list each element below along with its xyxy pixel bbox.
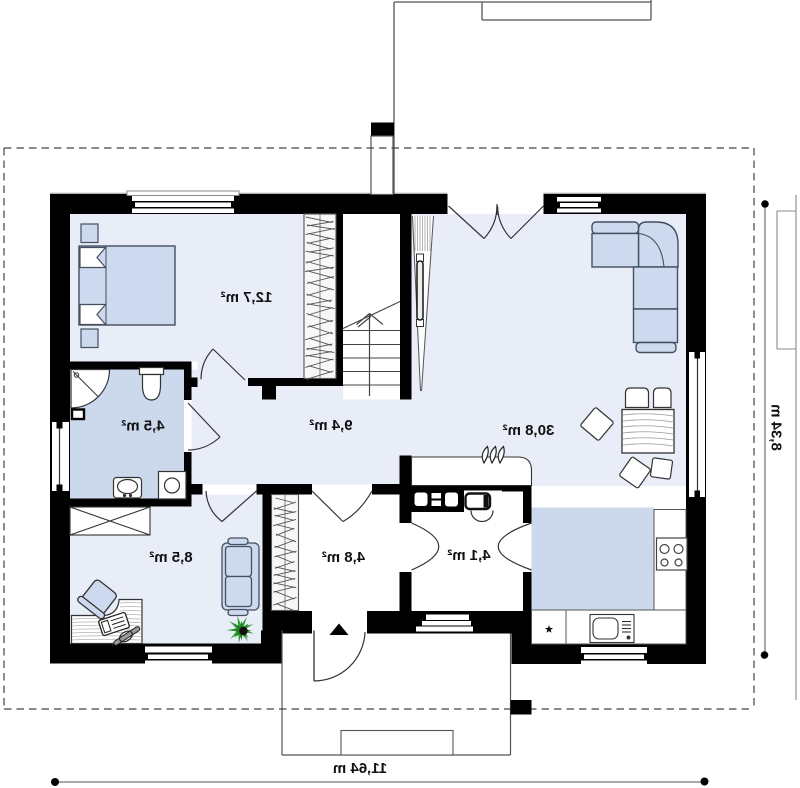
svg-text:8,34 m: 8,34 m [768, 404, 785, 451]
svg-text:12,7 m²: 12,7 m² [221, 289, 273, 306]
svg-text:4,8 m²: 4,8 m² [322, 549, 365, 566]
svg-text:8,5 m²: 8,5 m² [149, 549, 192, 566]
svg-text:4,5 m²: 4,5 m² [121, 418, 164, 435]
svg-text:30,8 m²: 30,8 m² [503, 422, 555, 439]
svg-text:11,64 m: 11,64 m [333, 760, 387, 777]
svg-text:9,4 m²: 9,4 m² [309, 417, 352, 434]
svg-text:4,1 m²: 4,1 m² [447, 547, 490, 564]
